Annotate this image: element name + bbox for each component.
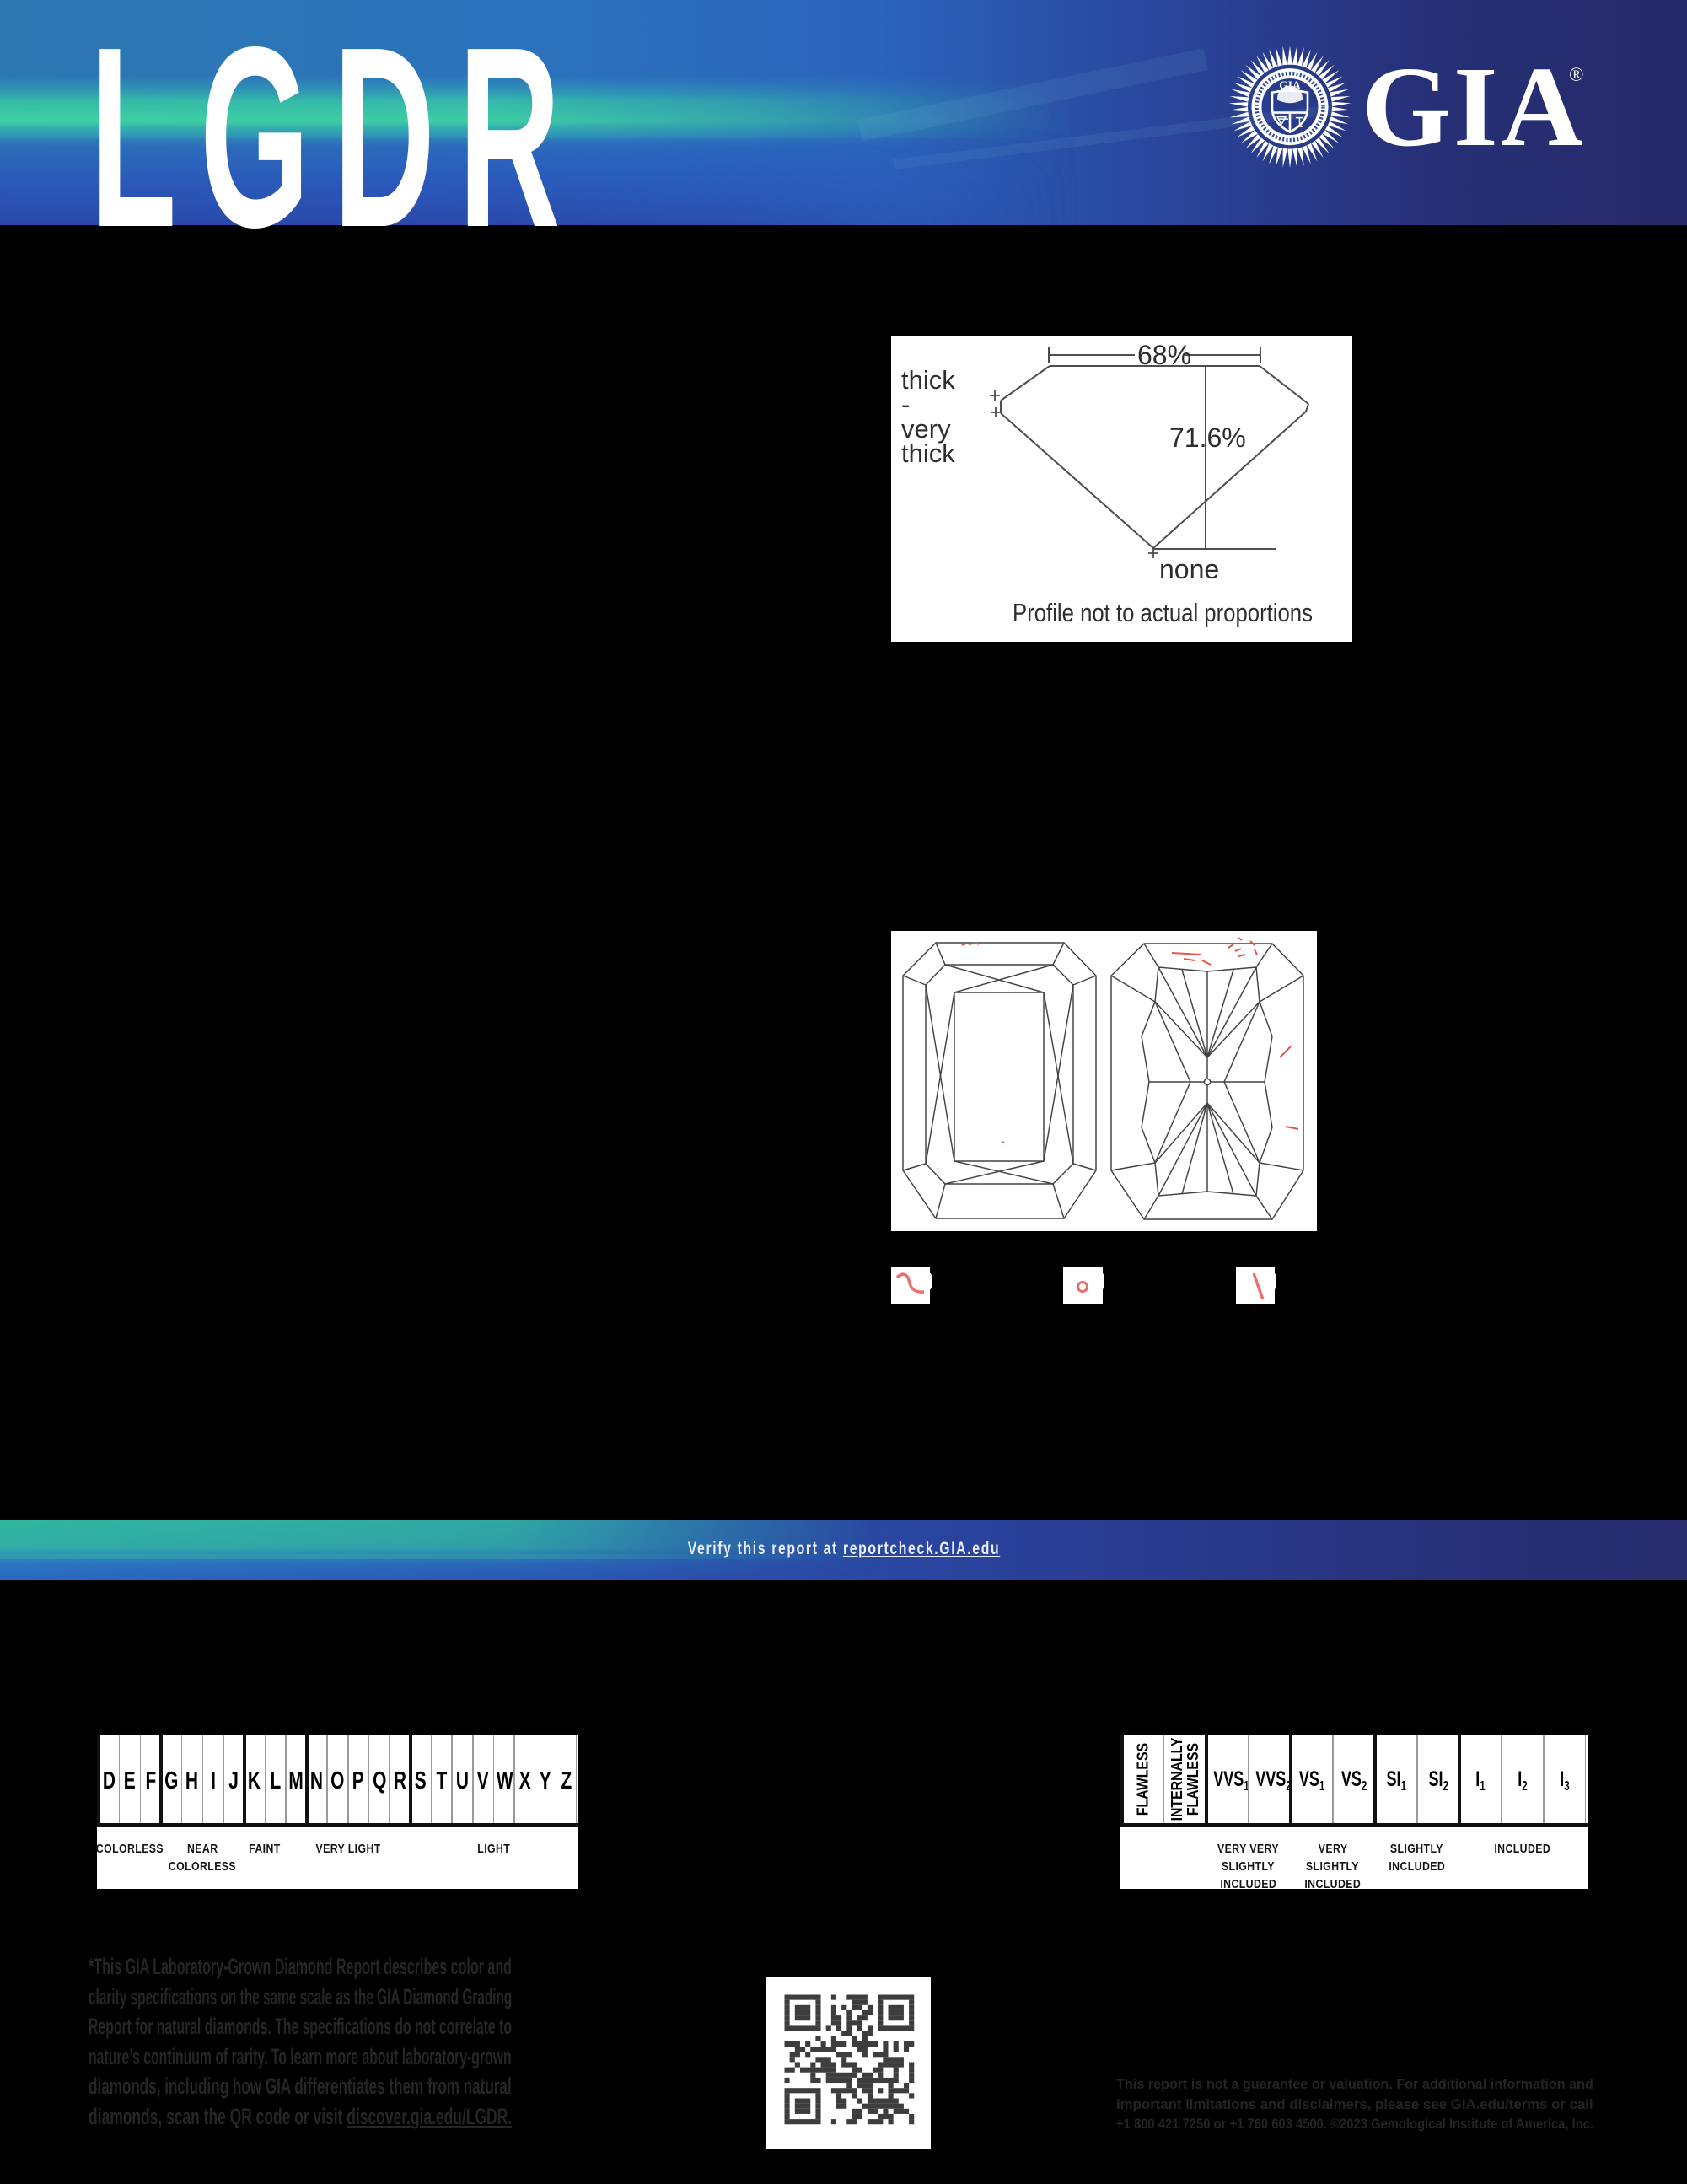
- svg-text:68%: 68%: [1137, 340, 1191, 370]
- svg-text:thick: thick: [901, 438, 955, 468]
- svg-text:none: none: [1159, 554, 1219, 584]
- svg-text:71.6%: 71.6%: [1169, 422, 1246, 453]
- svg-text:®: ®: [1569, 64, 1583, 85]
- svg-text:Profile not to actual proporti: Profile not to actual proportions: [1013, 599, 1313, 628]
- svg-text:GIA: GIA: [1362, 44, 1586, 170]
